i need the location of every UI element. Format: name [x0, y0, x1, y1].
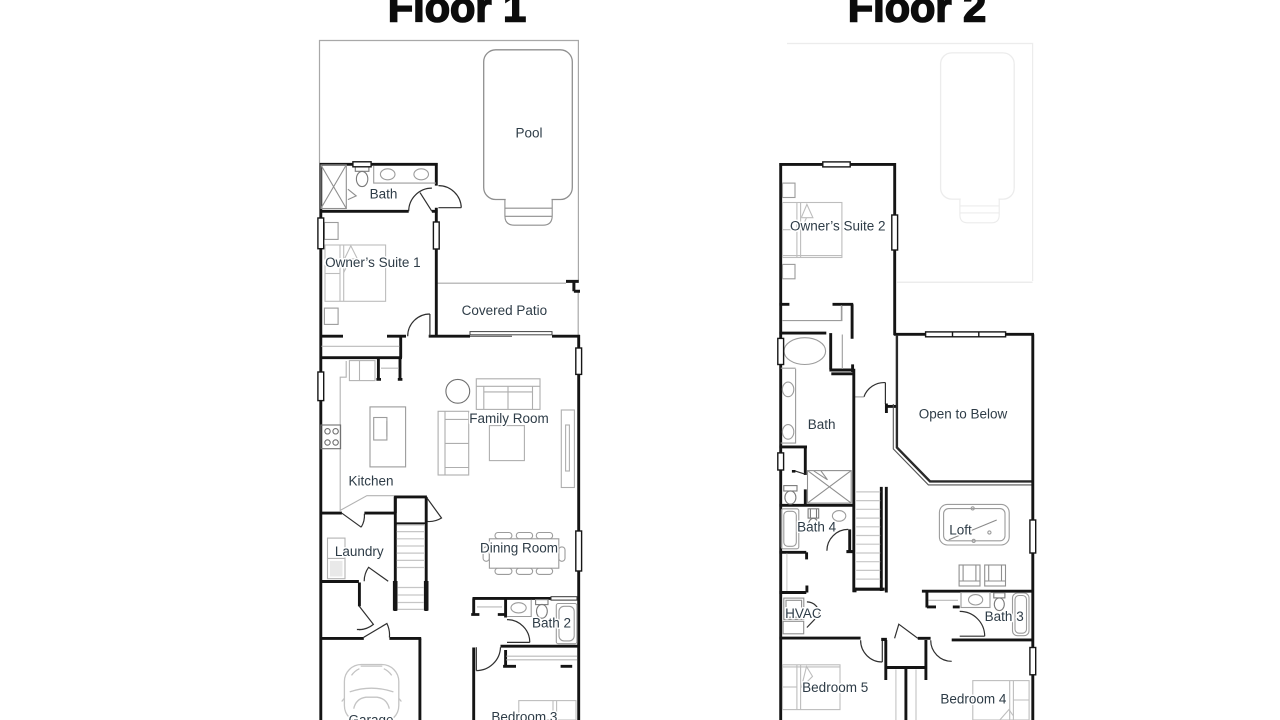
svg-text:Bath 3: Bath 3 — [985, 609, 1024, 624]
svg-text:Bath: Bath — [808, 417, 836, 432]
svg-text:HVAC: HVAC — [785, 606, 822, 621]
svg-text:Loft: Loft — [949, 522, 972, 537]
svg-text:Floor 2: Floor 2 — [848, 0, 986, 31]
svg-text:Bedroom 3: Bedroom 3 — [491, 710, 557, 720]
svg-text:Owner’s Suite 2: Owner’s Suite 2 — [790, 218, 886, 233]
svg-text:Family Room: Family Room — [469, 411, 549, 426]
svg-text:Bedroom 4: Bedroom 4 — [940, 691, 1007, 706]
svg-text:Bedroom 5: Bedroom 5 — [802, 680, 868, 695]
svg-text:Floor 1: Floor 1 — [388, 0, 526, 31]
svg-text:Kitchen: Kitchen — [348, 474, 393, 489]
svg-text:Garage: Garage — [348, 713, 393, 720]
svg-text:Laundry: Laundry — [335, 544, 384, 559]
svg-text:Bath 2: Bath 2 — [532, 615, 571, 630]
svg-text:Covered Patio: Covered Patio — [462, 303, 548, 318]
svg-text:Open to Below: Open to Below — [919, 406, 1008, 421]
svg-text:Owner’s Suite 1: Owner’s Suite 1 — [325, 255, 421, 270]
svg-text:Bath 4: Bath 4 — [797, 519, 837, 534]
svg-text:Pool: Pool — [515, 126, 542, 141]
svg-text:Bath: Bath — [370, 187, 398, 202]
svg-text:Dining Room: Dining Room — [480, 540, 558, 555]
